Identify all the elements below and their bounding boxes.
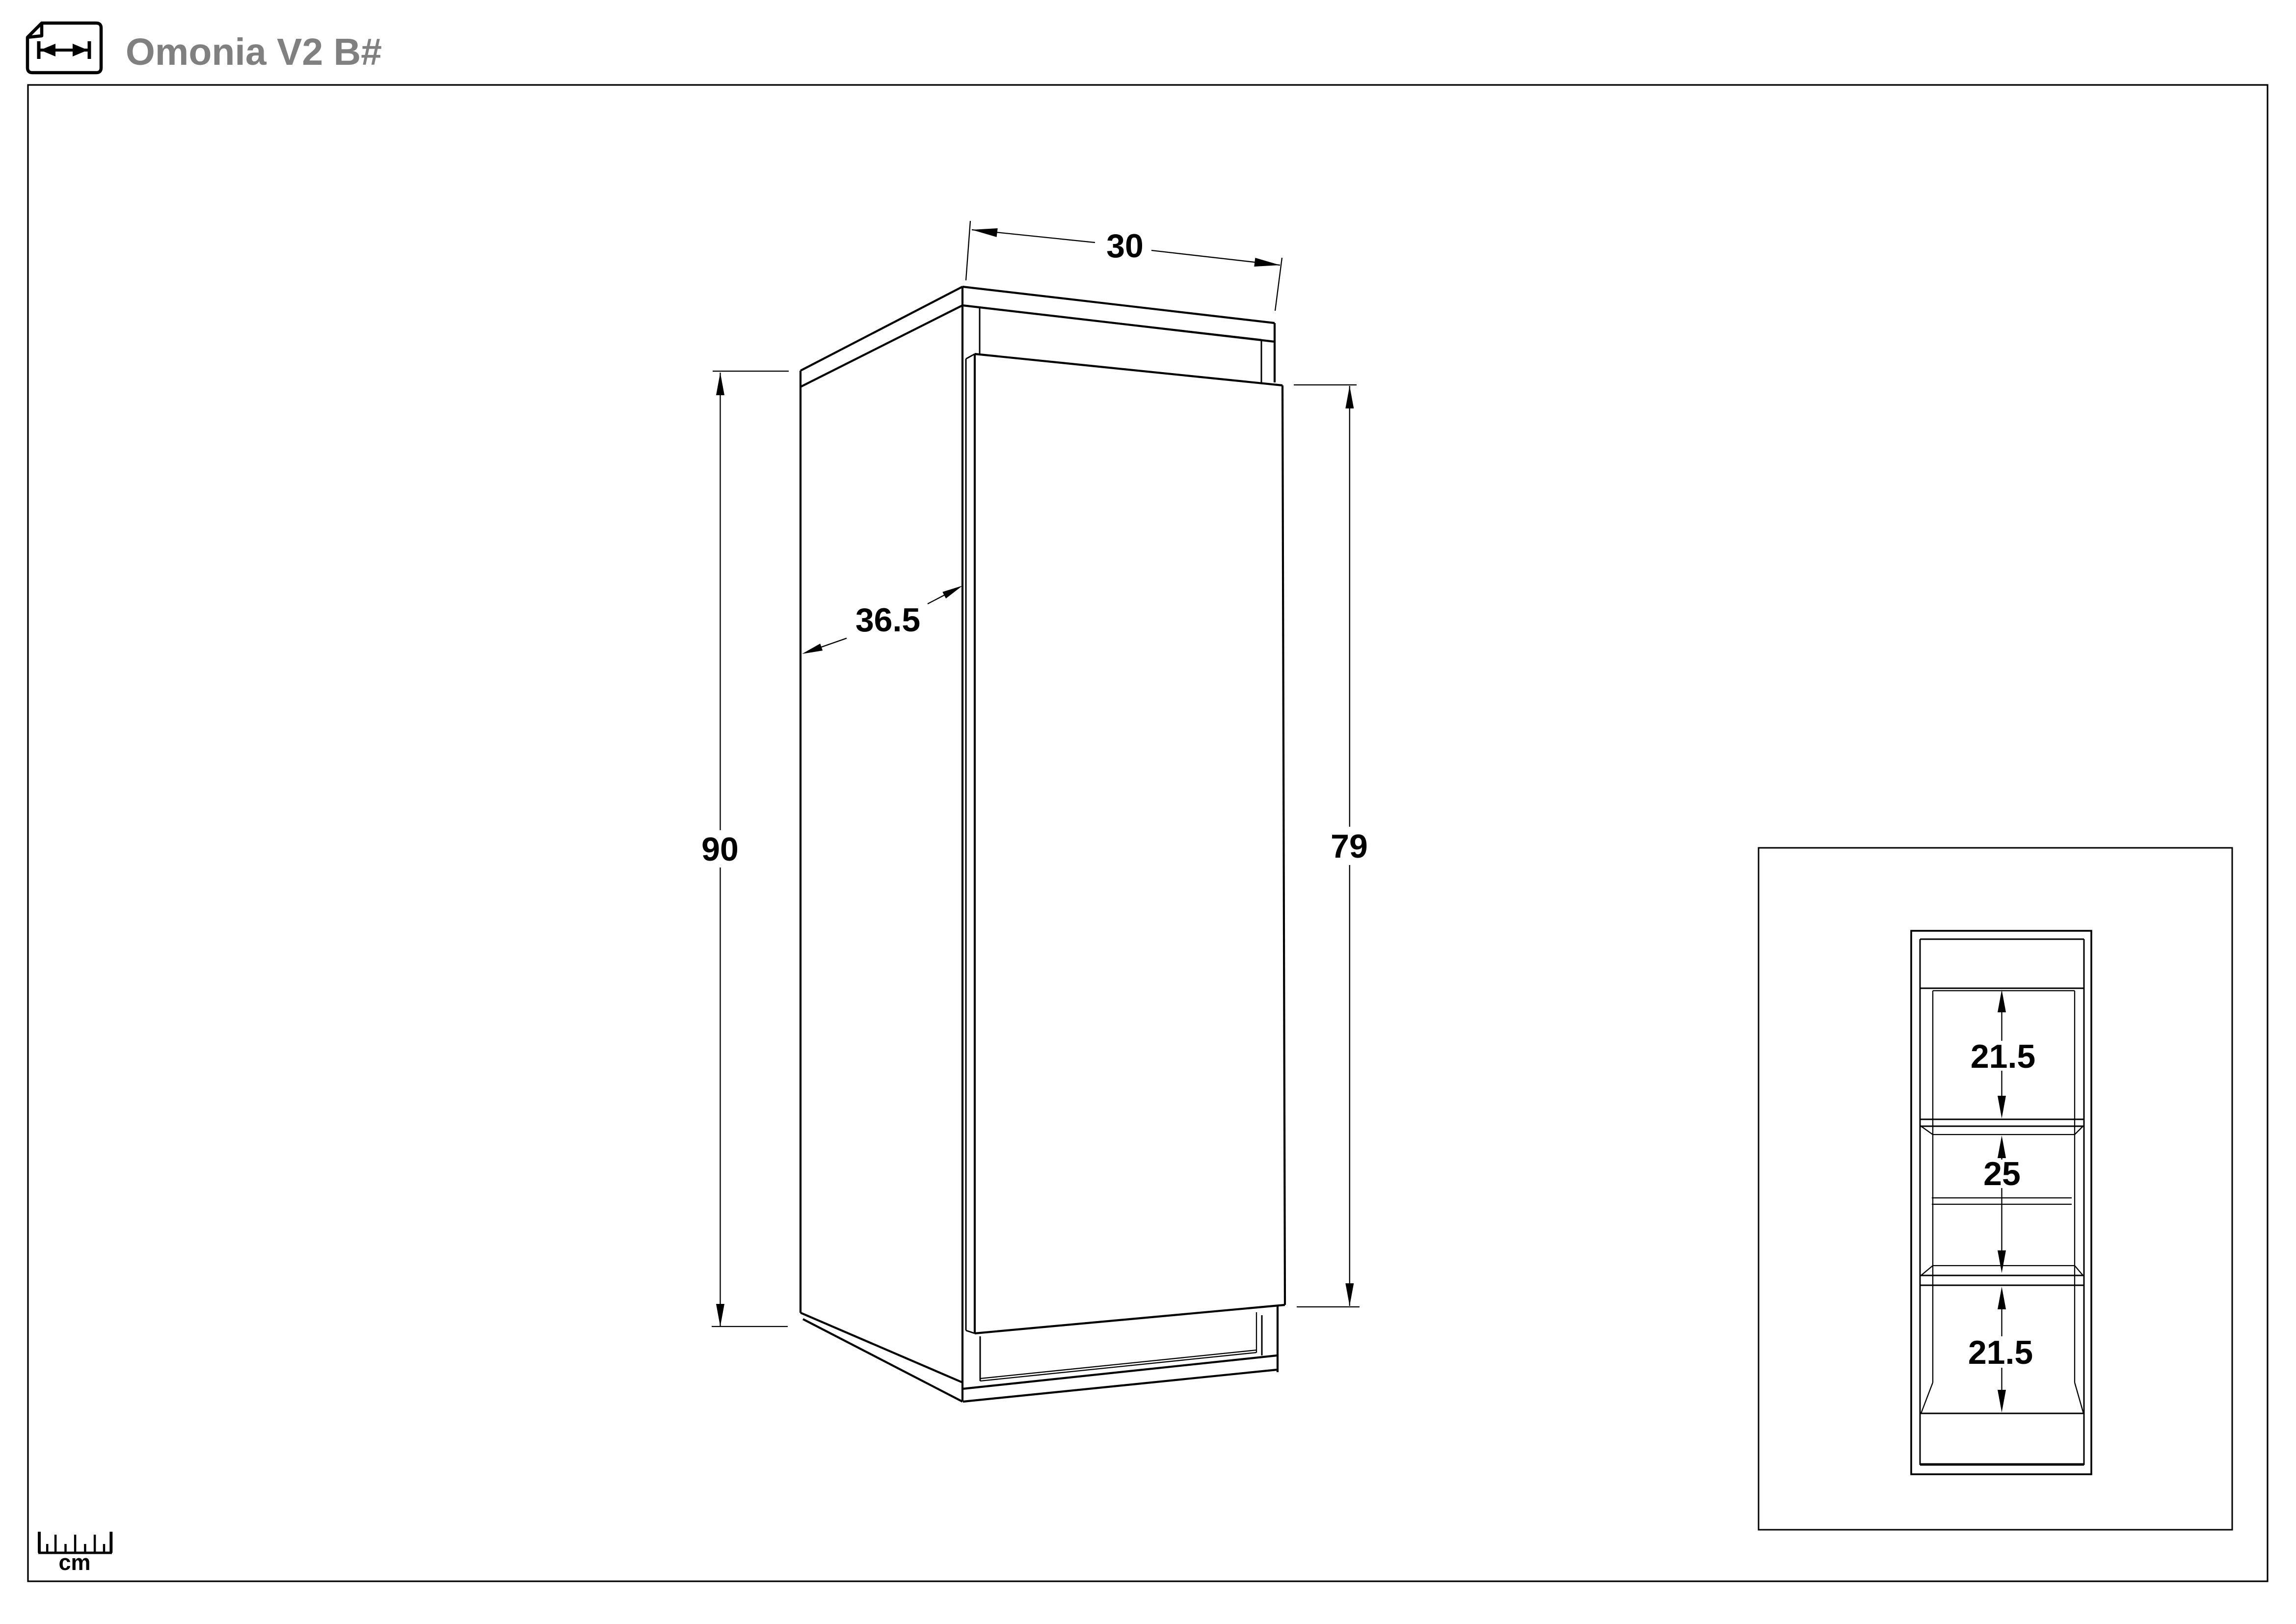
svg-text:Omonia V2 B#: Omonia V2 B#: [126, 31, 382, 73]
svg-text:cm: cm: [58, 1550, 90, 1575]
svg-text:90: 90: [701, 831, 739, 868]
svg-text:36.5: 36.5: [855, 601, 920, 639]
svg-text:21.5: 21.5: [1971, 1038, 2035, 1075]
svg-text:79: 79: [1331, 828, 1368, 865]
svg-text:30: 30: [1106, 227, 1144, 265]
svg-text:21.5: 21.5: [1968, 1334, 2033, 1371]
svg-text:25: 25: [1983, 1155, 2021, 1192]
